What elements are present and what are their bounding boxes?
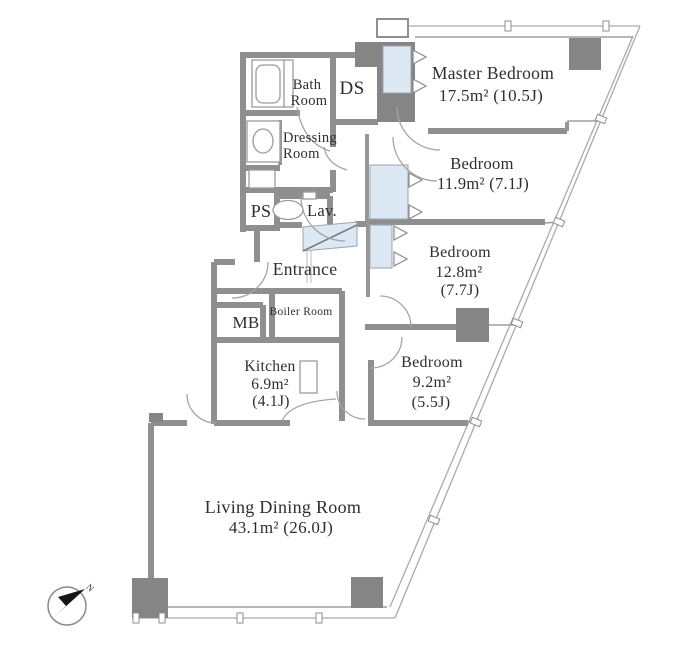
label-dressing-1: Dressing: [283, 130, 337, 146]
arrow-icon: [413, 50, 426, 64]
label-master-area: 17.5m² (10.5J): [439, 86, 543, 105]
pillar-ne: [569, 38, 601, 70]
toilet: [273, 201, 303, 220]
arrow-icon: [394, 252, 407, 266]
pillar-east: [456, 308, 489, 342]
label-entrance: Entrance: [273, 259, 338, 279]
balcony-partition: [377, 19, 408, 37]
closet-bedroom2: [370, 165, 408, 219]
label-kitchen-m2: 6.9m²: [251, 376, 289, 393]
label-kitchen-name: Kitchen: [244, 358, 295, 375]
pillar-se: [351, 577, 383, 608]
label-ps: PS: [251, 201, 272, 221]
label-bedroom2-area: 11.9m² (7.1J): [437, 174, 529, 193]
wall-notch: [149, 413, 163, 422]
arrow-icon: [394, 226, 407, 240]
arrow-icon: [413, 79, 426, 93]
label-bedroom4-m2: 9.2m²: [413, 374, 452, 391]
label-bedroom3-name: Bedroom: [429, 244, 491, 261]
closet-bedroom3: [370, 225, 392, 268]
label-master-name: Master Bedroom: [432, 63, 554, 83]
vanity-sink: [253, 129, 273, 153]
label-mb: MB: [232, 313, 259, 332]
floorplan-drawing: Master Bedroom 17.5m² (10.5J) Bedroom 11…: [0, 0, 700, 650]
toilet-paper-holder: [303, 192, 316, 199]
label-lav: Lav.: [307, 201, 337, 220]
arrow-icon: [409, 205, 422, 219]
kitchen-sink: [300, 361, 317, 393]
railing-ticks: [133, 21, 609, 623]
floorplan-page: Master Bedroom 17.5m² (10.5J) Bedroom 11…: [0, 0, 700, 650]
label-bedroom3-jo: (7.7J): [441, 282, 480, 299]
label-ds: DS: [340, 78, 365, 99]
label-bedroom3-m2: 12.8m²: [435, 264, 482, 281]
label-living-name: Living Dining Room: [205, 497, 361, 517]
closet-master: [383, 46, 411, 93]
label-living-area: 43.1m² (26.0J): [229, 518, 333, 537]
label-bedroom2-name: Bedroom: [450, 154, 514, 173]
label-bedroom4-name: Bedroom: [401, 354, 463, 371]
label-dressing-2: Room: [283, 146, 320, 162]
washer-space: [249, 170, 275, 188]
compass-north-label: N: [84, 582, 96, 594]
compass-icon: N: [48, 582, 96, 625]
bathtub-inner: [256, 65, 280, 103]
label-bath-1: Bath: [293, 77, 322, 93]
label-bedroom4-jo: (5.5J): [412, 394, 451, 411]
pillar-sw: [132, 578, 168, 618]
label-kitchen-jo: (4.1J): [252, 393, 290, 410]
label-bath-2: Room: [291, 93, 328, 109]
label-boiler: Boiler Room: [269, 306, 332, 318]
